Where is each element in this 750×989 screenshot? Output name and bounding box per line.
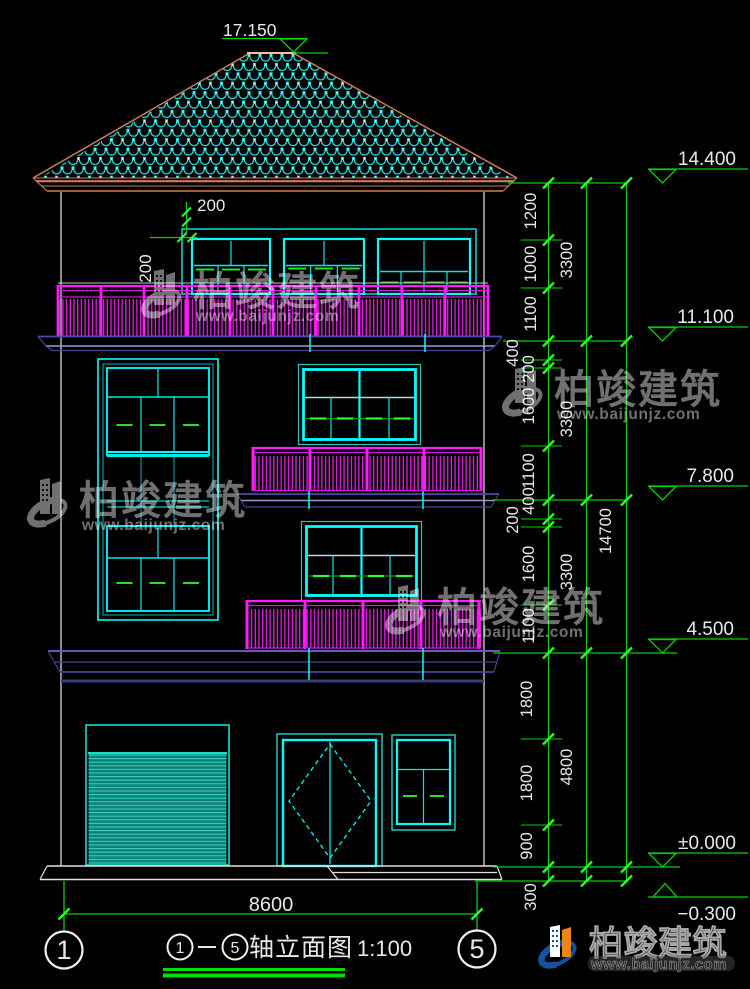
svg-text:17.150: 17.150 [223,20,277,40]
svg-text:1200: 1200 [522,193,540,230]
svg-text:1:100: 1:100 [357,936,412,961]
svg-text:1: 1 [56,935,71,965]
svg-text:200: 200 [197,196,225,215]
svg-text:1100: 1100 [520,453,538,488]
svg-text:1000: 1000 [522,246,540,283]
svg-text:1600: 1600 [520,546,538,583]
svg-text:900: 900 [518,832,536,860]
svg-text:3300: 3300 [558,242,576,279]
svg-text:1800: 1800 [518,765,536,802]
svg-text:200: 200 [504,506,522,534]
svg-text:1800: 1800 [518,681,536,718]
svg-text:5: 5 [231,940,240,957]
svg-text:14700: 14700 [597,508,615,554]
svg-text:−0.300: −0.300 [677,904,736,925]
svg-text:4800: 4800 [558,749,576,786]
svg-text:7.800: 7.800 [686,466,734,487]
svg-text:4.500: 4.500 [686,619,734,640]
svg-text:200: 200 [136,254,155,282]
svg-text:300: 300 [522,883,540,911]
svg-text:±0.000: ±0.000 [678,833,736,854]
svg-text:400: 400 [520,487,538,515]
svg-text:1100: 1100 [522,296,540,331]
svg-text:14.400: 14.400 [678,149,736,170]
svg-text:8600: 8600 [249,894,294,916]
svg-text:www.baijunjz.com: www.baijunjz.com [590,956,727,973]
svg-text:11.100: 11.100 [677,307,734,328]
svg-text:1: 1 [176,940,185,957]
svg-text:5: 5 [469,934,484,964]
svg-text:3300: 3300 [558,554,576,591]
svg-text:轴立面图: 轴立面图 [249,934,353,962]
